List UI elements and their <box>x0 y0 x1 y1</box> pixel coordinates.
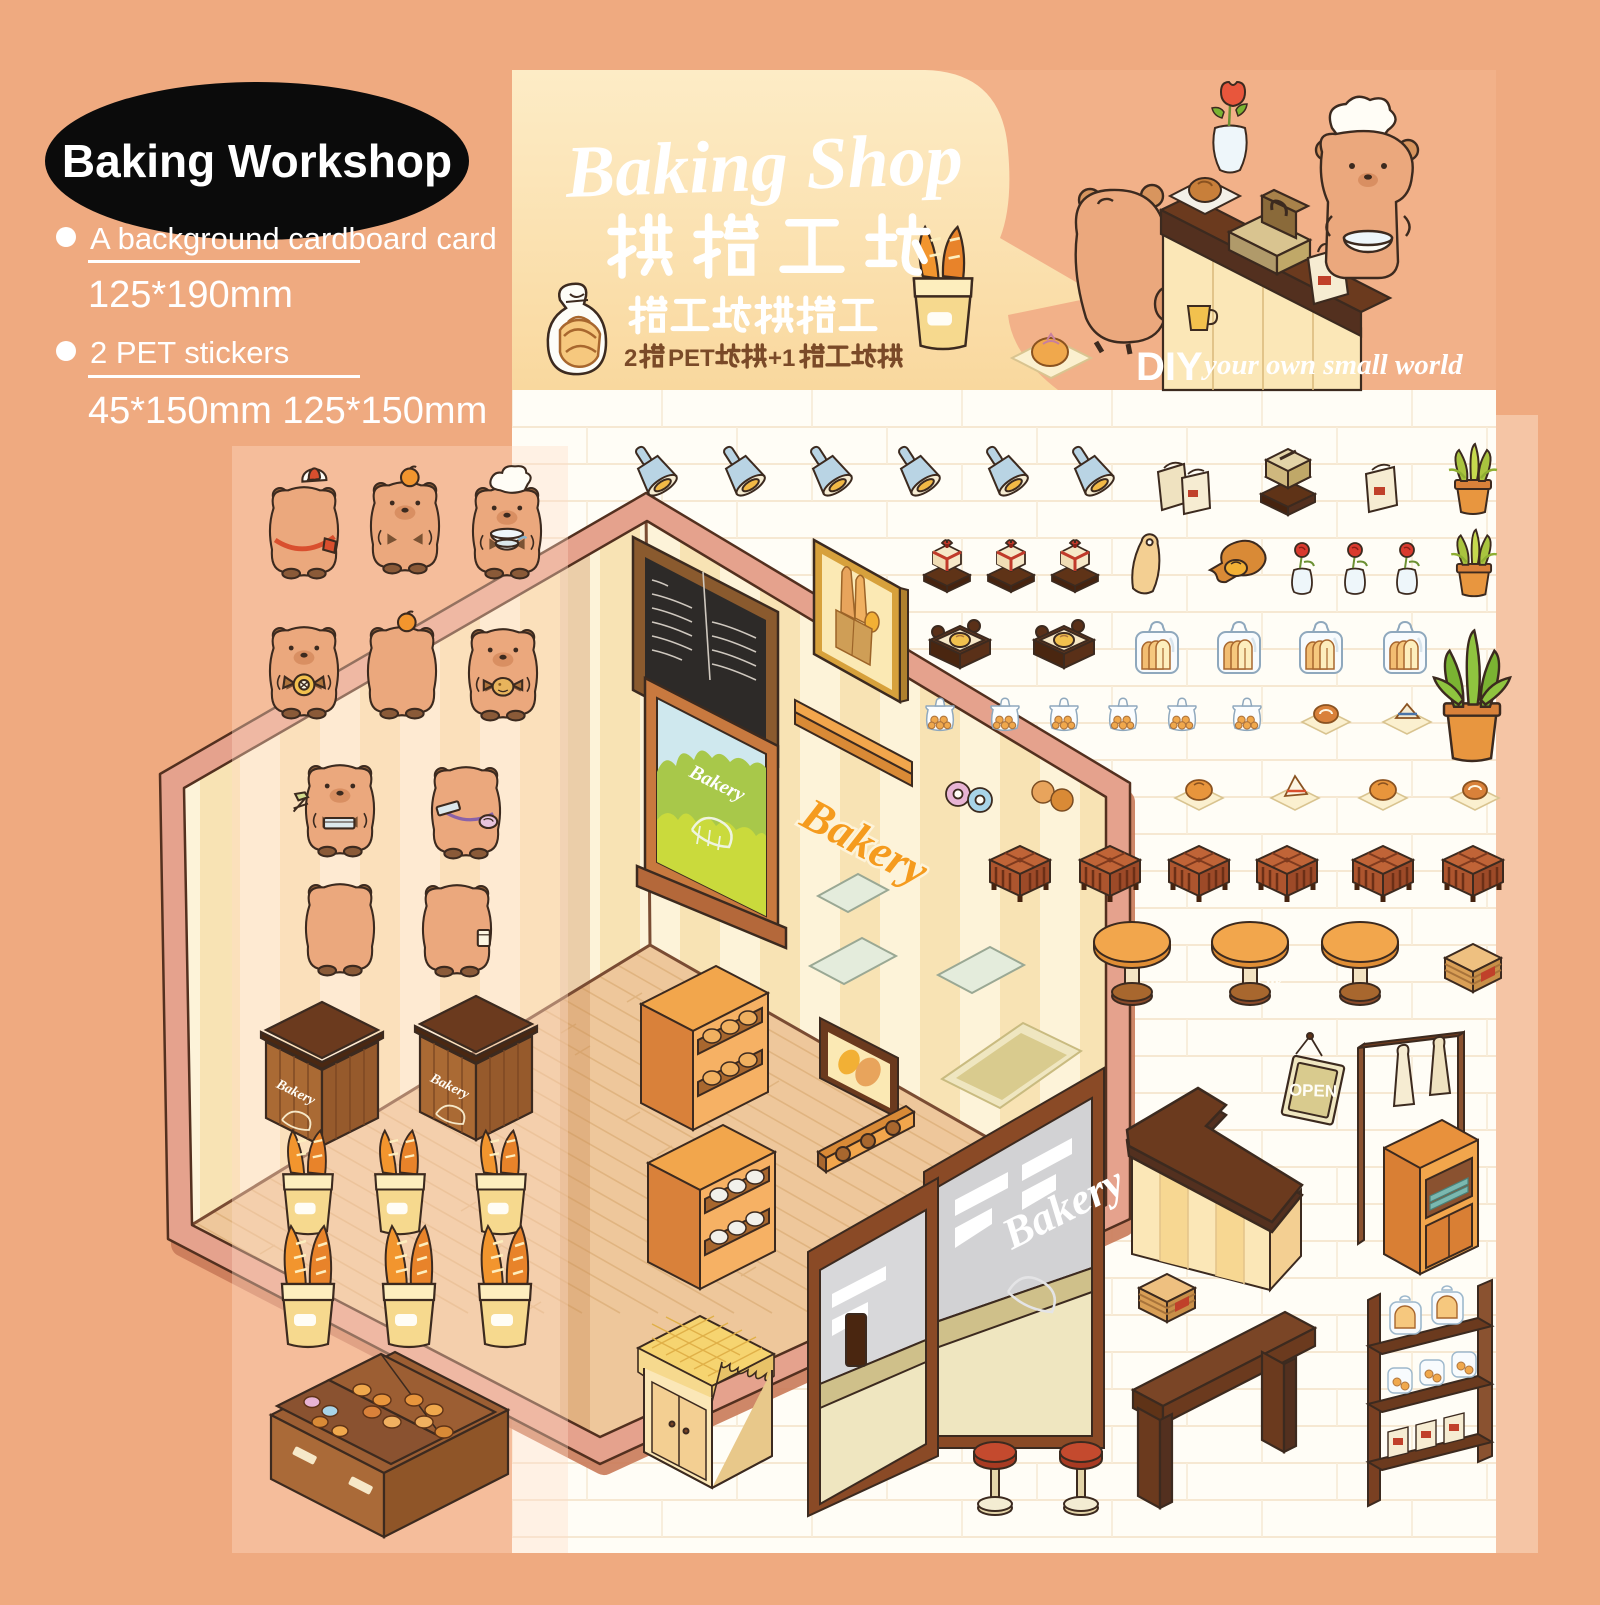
svg-text:2 PET stickers: 2 PET stickers <box>90 335 289 370</box>
svg-text:DIY: DIY <box>1136 345 1203 389</box>
svg-text:+1: +1 <box>768 345 795 372</box>
svg-text:your own small world: your own small world <box>1201 349 1463 381</box>
svg-text:Baking Shop: Baking Shop <box>563 118 964 214</box>
svg-text:2: 2 <box>624 345 637 372</box>
svg-text:45*150mm 125*150mm: 45*150mm 125*150mm <box>88 390 487 432</box>
svg-text:PET: PET <box>668 345 715 372</box>
svg-text:A background cardboard card: A background cardboard card <box>90 221 497 256</box>
svg-text:125*190mm: 125*190mm <box>88 274 293 316</box>
svg-text:OPEN: OPEN <box>1289 1080 1338 1101</box>
svg-text:Baking Workshop: Baking Workshop <box>62 135 452 187</box>
